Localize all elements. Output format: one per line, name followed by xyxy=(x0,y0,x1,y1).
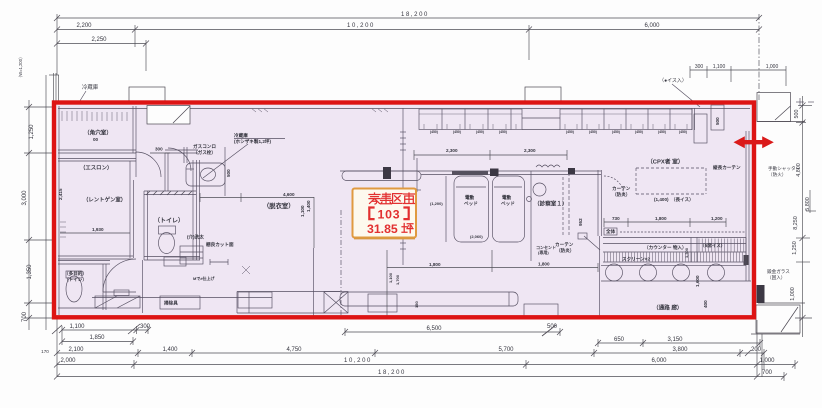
svg-text:1,000: 1,000 xyxy=(766,64,779,70)
svg-text:(450): (450) xyxy=(589,130,597,134)
svg-text:カーテン: カーテン xyxy=(612,185,631,192)
svg-text:(ホシザキ製1,2坪): (ホシザキ製1,2坪) xyxy=(234,138,271,145)
svg-text:（カウンター 物入）: （カウンター 物入） xyxy=(644,244,687,251)
svg-text:(専用): (専用) xyxy=(538,249,549,255)
svg-text:1,800: 1,800 xyxy=(429,262,441,267)
svg-text:170: 170 xyxy=(41,349,49,354)
svg-text:（トイレ）: （トイレ） xyxy=(154,217,184,225)
svg-text:(450): (450) xyxy=(635,130,643,134)
svg-text:1,400: 1,400 xyxy=(162,347,178,353)
svg-text:（防炎）: （防炎） xyxy=(612,191,630,198)
svg-text:(450): (450) xyxy=(612,130,620,134)
svg-text:103: 103 xyxy=(378,208,401,222)
svg-text:手動シャッター: 手動シャッター xyxy=(768,165,801,172)
svg-text:400: 400 xyxy=(703,300,708,308)
svg-text:Mで≠仕上げ: Mで≠仕上げ xyxy=(193,275,216,281)
svg-text:10,200: 10,200 xyxy=(347,23,375,29)
svg-text:2,100: 2,100 xyxy=(68,347,84,353)
svg-text:2,200: 2,200 xyxy=(76,23,92,29)
svg-text:8,250: 8,250 xyxy=(793,216,799,230)
svg-text:1,200: 1,200 xyxy=(711,216,723,221)
svg-text:1,100: 1,100 xyxy=(713,64,726,70)
svg-text:10,200: 10,200 xyxy=(344,358,372,364)
svg-text:（脱衣室）: （脱衣室） xyxy=(263,201,294,210)
svg-text:3,150: 3,150 xyxy=(667,337,683,343)
svg-text:1,400: 1,400 xyxy=(306,200,311,212)
svg-text:4,750: 4,750 xyxy=(286,347,302,353)
svg-text:カーテン: カーテン xyxy=(555,241,574,248)
svg-text:6,000: 6,000 xyxy=(651,358,667,364)
svg-text:1,250: 1,250 xyxy=(29,124,35,140)
svg-text:3,000: 3,000 xyxy=(22,190,28,206)
svg-text:6,000: 6,000 xyxy=(644,23,660,29)
svg-text:700: 700 xyxy=(762,370,773,376)
svg-text:1,350: 1,350 xyxy=(27,264,33,280)
svg-text:1,600: 1,600 xyxy=(695,275,700,287)
svg-text:（防火）: （防火） xyxy=(768,171,786,178)
svg-text:1,000: 1,000 xyxy=(759,358,775,364)
svg-text:（CPX者 室）: （CPX者 室） xyxy=(647,158,684,166)
svg-text:1,800: 1,800 xyxy=(538,262,550,267)
svg-text:(1,400) （長イス）: (1,400) （長イス） xyxy=(654,196,694,203)
svg-text:300: 300 xyxy=(155,147,163,152)
svg-text:掃除具: 掃除具 xyxy=(164,300,178,307)
svg-text:31.85: 31.85 xyxy=(367,222,398,236)
svg-text:500: 500 xyxy=(547,324,558,330)
svg-text:500: 500 xyxy=(715,117,720,125)
svg-text:150: 150 xyxy=(414,301,419,308)
svg-text:1,000: 1,000 xyxy=(790,287,796,301)
svg-text:(450): (450) xyxy=(453,130,461,134)
svg-text:2,300: 2,300 xyxy=(446,148,458,153)
svg-text:1,930: 1,930 xyxy=(92,227,104,232)
svg-text:(450): (450) xyxy=(476,130,484,134)
svg-text:2,000: 2,000 xyxy=(60,358,76,364)
svg-text:(450): (450) xyxy=(658,130,666,134)
svg-text:952: 952 xyxy=(578,218,583,226)
svg-text:1,100: 1,100 xyxy=(300,205,305,217)
svg-text:スクリーン×2: スクリーン×2 xyxy=(622,256,650,263)
svg-text:(1,200): (1,200) xyxy=(430,201,443,206)
svg-text:1,250: 1,250 xyxy=(792,241,798,255)
svg-text:冷蔵庫: 冷蔵庫 xyxy=(234,132,248,139)
svg-text:鍛金ガラス: 鍛金ガラス xyxy=(767,268,790,275)
svg-text:（W=1,200）: （W=1,200） xyxy=(18,55,23,80)
svg-text:（5席イス）: （5席イス） xyxy=(700,242,725,249)
svg-text:700: 700 xyxy=(22,311,28,322)
svg-text:(450): (450) xyxy=(430,130,438,134)
svg-text:2,415: 2,415 xyxy=(58,188,63,200)
svg-text:(2,060): (2,060) xyxy=(470,234,483,239)
svg-text:冷蔵庫: 冷蔵庫 xyxy=(82,83,99,91)
svg-text:3,800: 3,800 xyxy=(672,347,688,353)
svg-text:1,100: 1,100 xyxy=(388,272,393,283)
svg-text:（多目的）: （多目的） xyxy=(64,270,87,277)
svg-text:全体: 全体 xyxy=(605,228,616,235)
svg-text:縦長カーテン: 縦長カーテン xyxy=(713,164,741,171)
svg-text:（レントゲン室）: （レントゲン室） xyxy=(83,196,126,204)
svg-text:(450): (450) xyxy=(679,130,687,134)
svg-text:1,800: 1,800 xyxy=(655,216,667,221)
svg-text:（通路 廊）: （通路 廊） xyxy=(653,304,683,312)
svg-text:2,300: 2,300 xyxy=(524,148,536,153)
svg-text:(介)洗太: (介)洗太 xyxy=(187,234,204,241)
svg-text:(450): (450) xyxy=(566,130,574,134)
svg-text:1,700: 1,700 xyxy=(395,274,400,285)
svg-text:（ガス栓）: （ガス栓） xyxy=(193,149,216,156)
svg-text:（防炎）: （防炎） xyxy=(556,247,574,254)
svg-text:18,200: 18,200 xyxy=(378,370,406,376)
svg-text:6,500: 6,500 xyxy=(426,326,442,332)
svg-text:1,300: 1,300 xyxy=(684,247,689,258)
svg-text:5,700: 5,700 xyxy=(498,347,514,353)
svg-text:500: 500 xyxy=(226,169,231,177)
svg-text:（エスロン）: （エスロン） xyxy=(80,164,112,172)
svg-text:ガスコンロ: ガスコンロ xyxy=(193,143,216,150)
svg-text:18,200: 18,200 xyxy=(401,12,429,18)
svg-text:730: 730 xyxy=(612,216,620,221)
svg-text:1,100: 1,100 xyxy=(69,324,85,330)
svg-text:（角穴室）: （角穴室） xyxy=(84,129,112,137)
svg-text:（●イス入）: （●イス入） xyxy=(659,78,687,84)
svg-text:棚良カット面: 棚良カット面 xyxy=(206,241,234,248)
svg-text:00: 00 xyxy=(93,137,99,142)
svg-text:4,600: 4,600 xyxy=(283,192,295,197)
svg-text:500: 500 xyxy=(794,110,800,119)
svg-text:電動: 電動 xyxy=(502,194,512,201)
svg-text:2,250: 2,250 xyxy=(91,37,107,43)
svg-text:（診察室１）: （診察室１） xyxy=(534,200,568,208)
svg-text:650: 650 xyxy=(614,337,625,343)
svg-text:300: 300 xyxy=(695,64,704,70)
svg-text:電動: 電動 xyxy=(465,194,475,201)
svg-text:5,800: 5,800 xyxy=(805,197,811,211)
svg-text:1,850: 1,850 xyxy=(89,335,105,341)
svg-text:200: 200 xyxy=(751,347,762,353)
svg-text:(450): (450) xyxy=(499,130,507,134)
